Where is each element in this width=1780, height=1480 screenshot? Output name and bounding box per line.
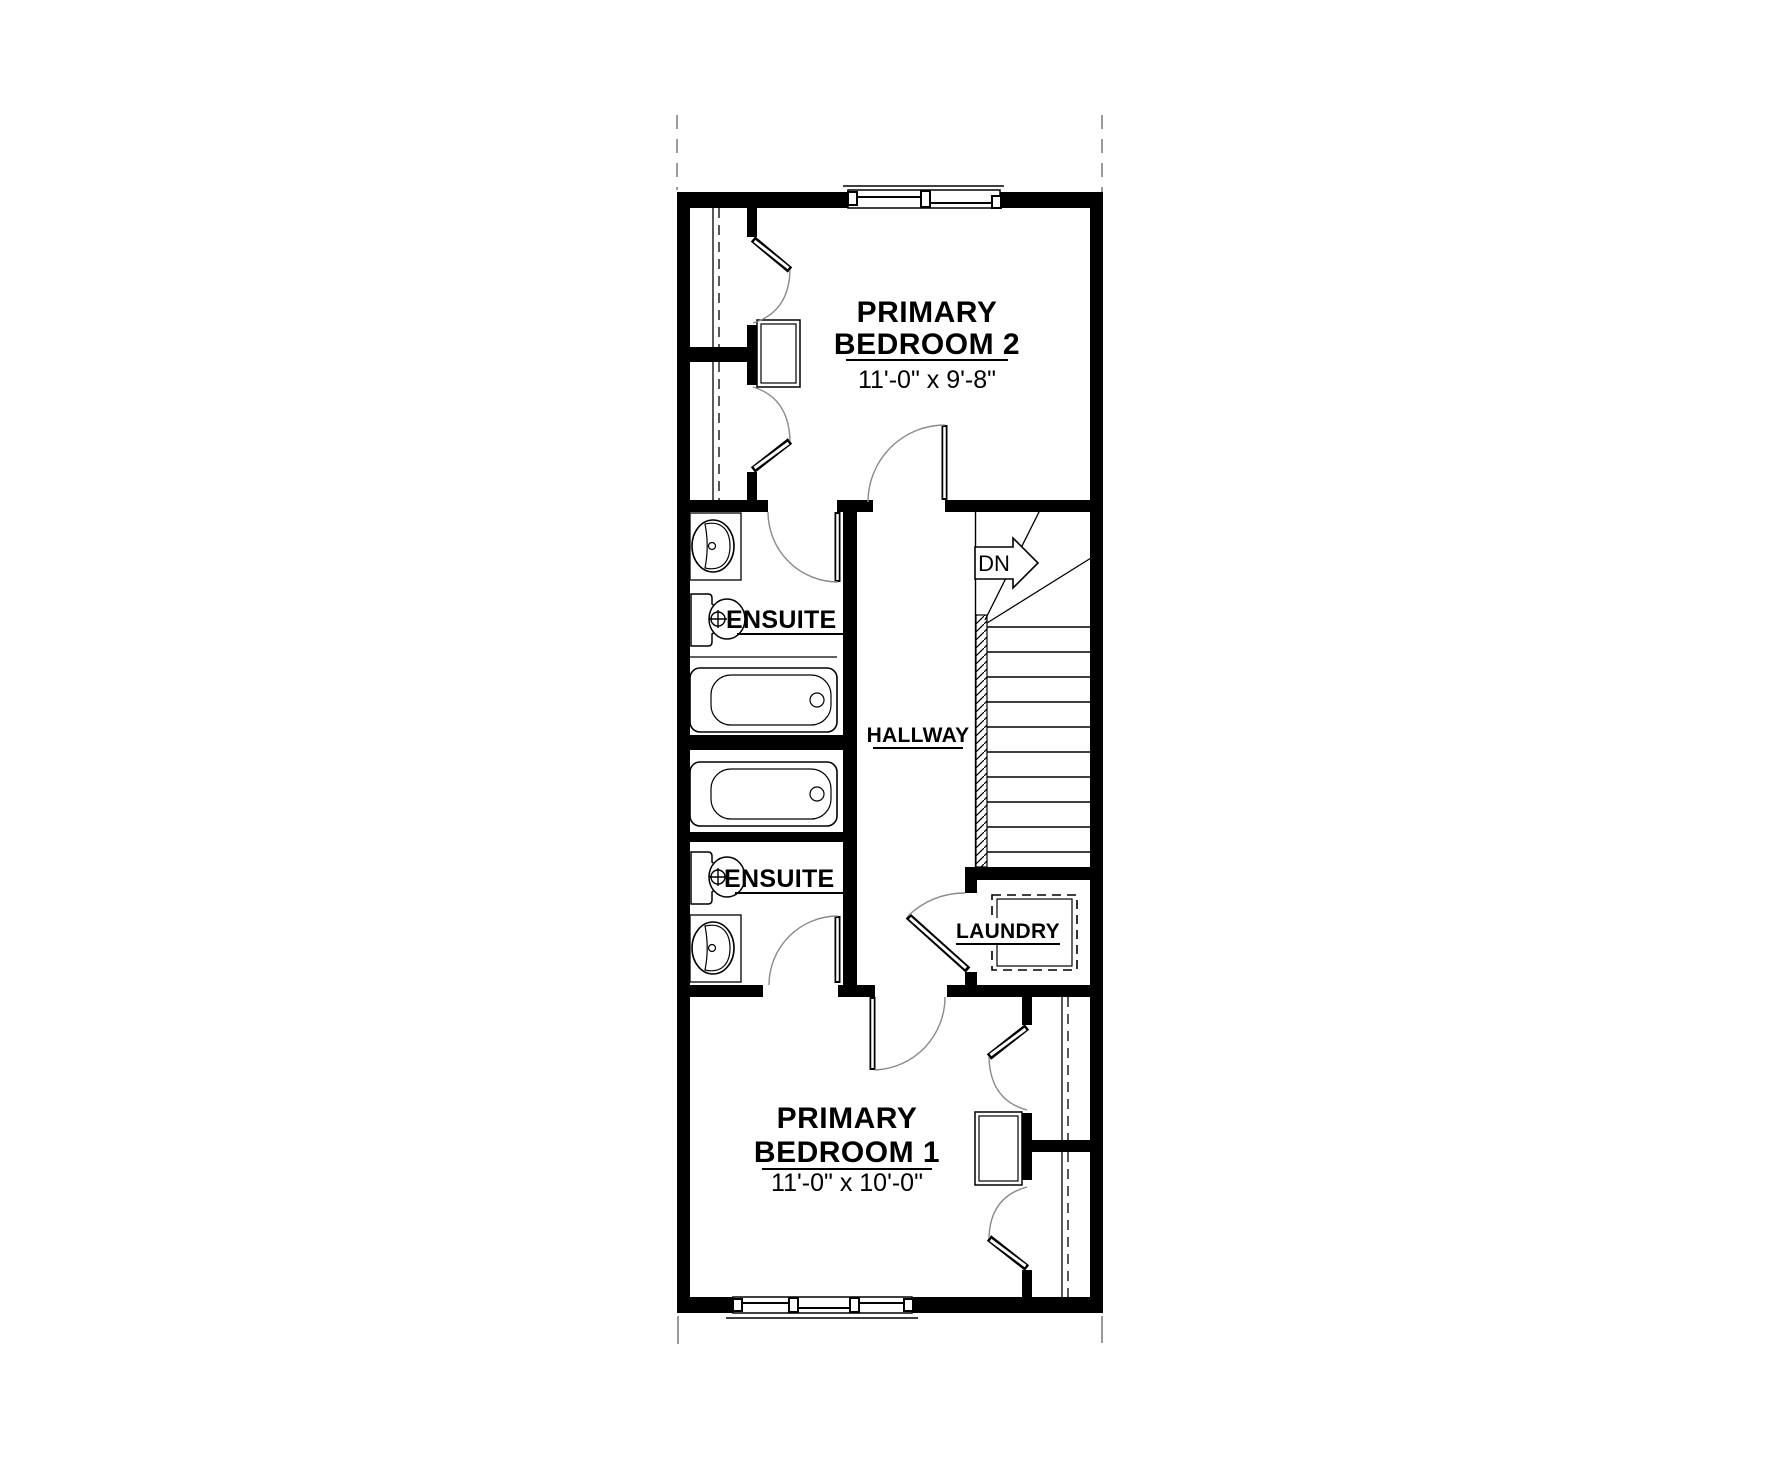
bedroom2-label: PRIMARY BEDROOM 2 11'-0" x 9'-8"	[834, 296, 1020, 394]
ensuite2-title: ENSUITE 2	[726, 606, 858, 634]
ensuite2-toilet	[690, 513, 741, 580]
bottom-window	[726, 1297, 918, 1318]
ensuite1-door	[769, 916, 838, 985]
ensuite1-title: ENSUITE 1	[724, 865, 856, 893]
laundry-title: LAUNDRY	[956, 920, 1060, 943]
ensuite2-label: ENSUITE 2	[726, 606, 858, 634]
bedroom2-title-line2: BEDROOM 2	[834, 328, 1020, 361]
top-window	[843, 186, 1004, 208]
ensuite2-door	[768, 512, 838, 582]
bedroom2-dimensions: 11'-0" x 9'-8"	[858, 366, 996, 394]
bedroom1-title-line2: BEDROOM 1	[754, 1136, 940, 1169]
hallway-label: HALLWAY	[867, 724, 970, 748]
bedroom2-door	[868, 425, 945, 502]
stairs-dn-label: DN	[978, 551, 1010, 576]
laundry-label: LAUNDRY	[953, 918, 1063, 945]
bedroom1-label: PRIMARY BEDROOM 1 11'-0" x 10'-0"	[754, 1102, 940, 1197]
floor-plan-page: DN	[0, 0, 1780, 1480]
ensuite1-toilet	[690, 915, 741, 982]
floor-plan: DN	[0, 0, 1780, 1480]
bedroom1-dimensions: 11'-0" x 10'-0"	[771, 1169, 923, 1197]
hallway-title: HALLWAY	[867, 724, 970, 747]
bedroom2-title-line1: PRIMARY	[857, 296, 998, 329]
bedroom1-door	[873, 997, 946, 1070]
ensuite1-bathtub	[690, 762, 837, 826]
ensuite1-label: ENSUITE 1	[724, 865, 856, 893]
ensuite2-bathtub	[690, 657, 837, 732]
bedroom1-title-line1: PRIMARY	[777, 1102, 918, 1135]
staircase: DN	[975, 510, 1091, 867]
